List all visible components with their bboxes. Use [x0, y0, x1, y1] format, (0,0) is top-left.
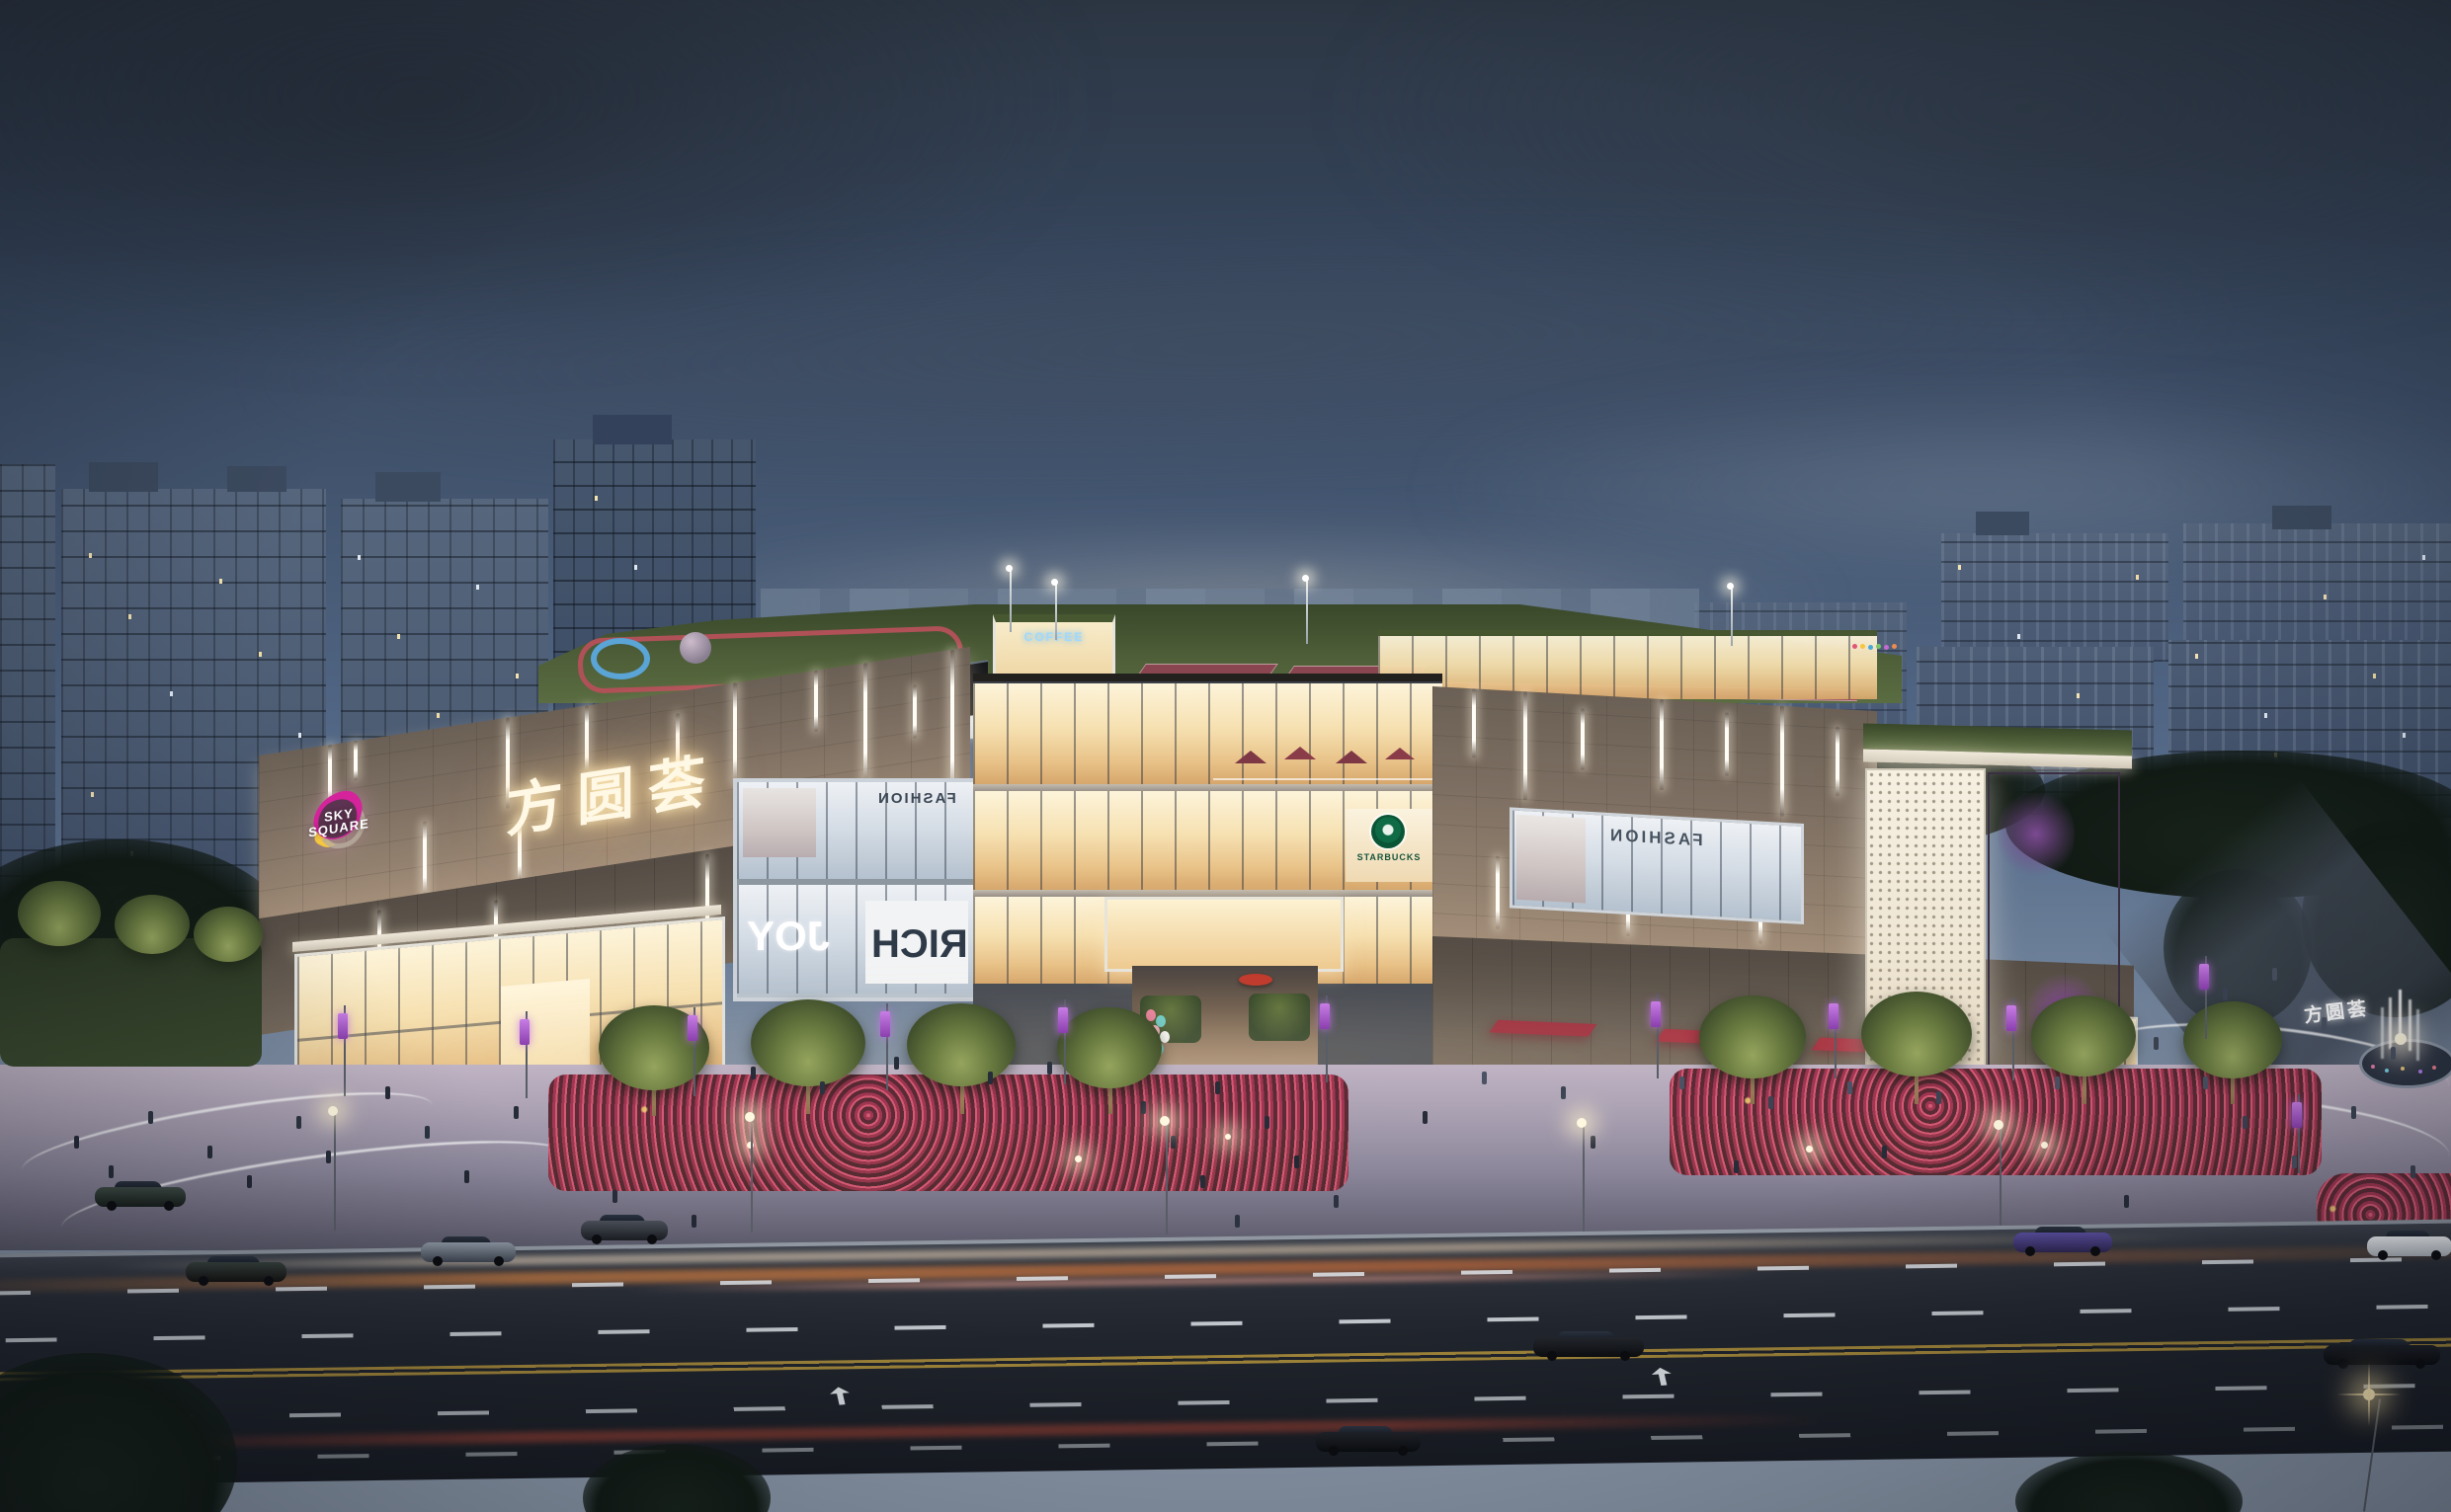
vignette-overlay: [0, 0, 2451, 1512]
night-mall-rendering: COFFEE SKY SQ: [0, 0, 2451, 1512]
